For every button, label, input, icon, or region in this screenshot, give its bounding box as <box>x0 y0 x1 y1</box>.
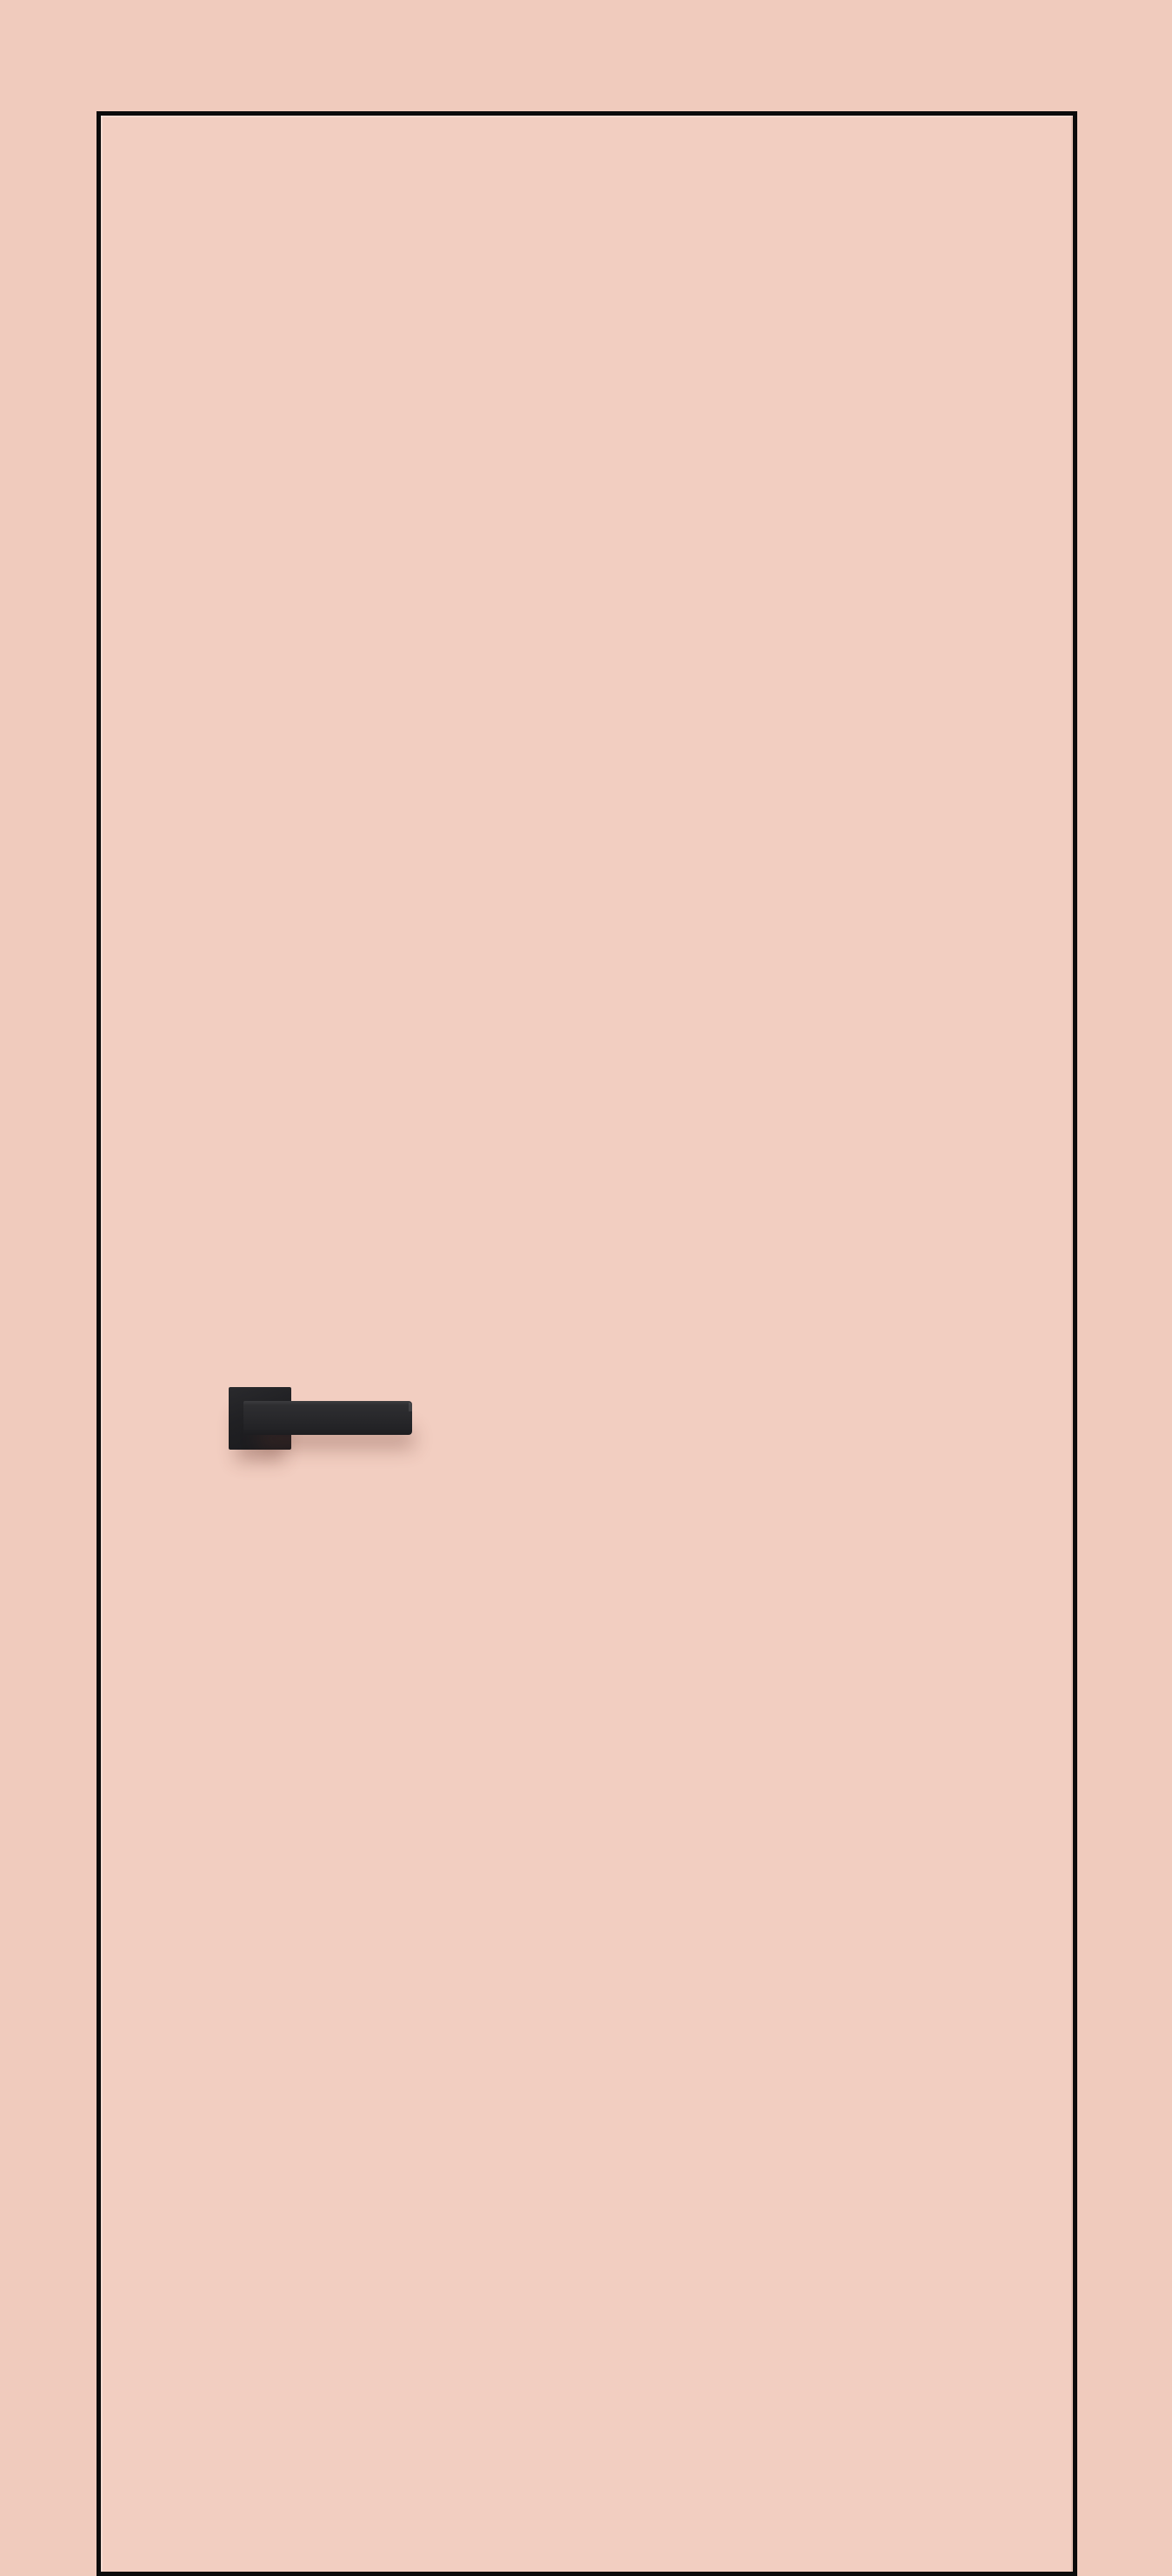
product-image-background <box>0 0 1172 2576</box>
door-leaf <box>97 111 1077 2576</box>
door-handle-lever <box>243 1401 412 1435</box>
